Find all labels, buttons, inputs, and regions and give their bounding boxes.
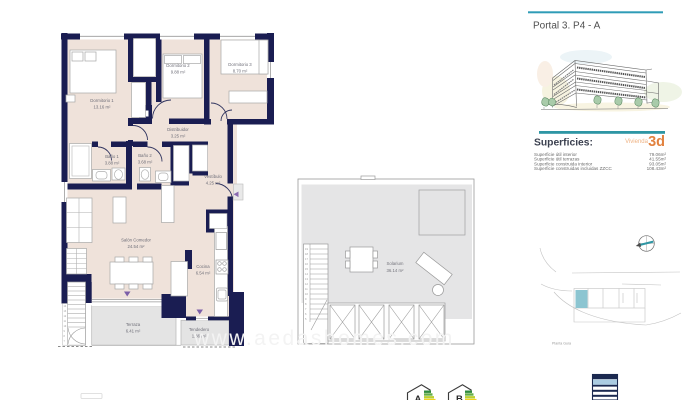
svg-text:24.54 m²: 24.54 m² bbox=[128, 244, 146, 249]
svg-text:Solarium: Solarium bbox=[387, 261, 404, 266]
svg-text:108.43m²: 108.43m² bbox=[647, 166, 667, 171]
svg-text:Vestíbulo: Vestíbulo bbox=[204, 174, 222, 179]
svg-text:6.54 m²: 6.54 m² bbox=[196, 271, 211, 276]
svg-text:9.88 m²: 9.88 m² bbox=[171, 70, 186, 75]
svg-text:Cocina: Cocina bbox=[196, 264, 210, 269]
svg-text:Salón Comedor: Salón Comedor bbox=[121, 238, 151, 243]
svg-text:6.41 m²: 6.41 m² bbox=[126, 329, 141, 334]
svg-text:Portal 3. P4 - A: Portal 3. P4 - A bbox=[533, 21, 601, 32]
svg-text:Superficies:: Superficies: bbox=[534, 138, 593, 149]
svg-text:Terraza: Terraza bbox=[126, 322, 141, 327]
svg-text:3.25 m²: 3.25 m² bbox=[171, 134, 186, 139]
svg-text:13.16 m²: 13.16 m² bbox=[94, 105, 112, 110]
svg-text:Planta Guía: Planta Guía bbox=[552, 342, 571, 346]
svg-text:Vivienda: Vivienda bbox=[625, 139, 649, 145]
svg-text:3.88 m²: 3.88 m² bbox=[105, 161, 120, 166]
svg-text:B: B bbox=[456, 394, 463, 400]
svg-text:36.14 m²: 36.14 m² bbox=[387, 268, 405, 273]
svg-text:A: A bbox=[415, 394, 422, 400]
svg-text:Baño 2: Baño 2 bbox=[138, 153, 152, 158]
svg-text:4.25 m²: 4.25 m² bbox=[206, 181, 221, 186]
svg-text:Superficie construidas incluid: Superficie construidas incluidas ZZCC bbox=[534, 166, 613, 171]
svg-text:Dormitorio 2: Dormitorio 2 bbox=[166, 63, 190, 68]
svg-text:Dormitorio 1: Dormitorio 1 bbox=[90, 98, 114, 103]
svg-text:8.70 m²: 8.70 m² bbox=[233, 69, 248, 74]
svg-text:3d: 3d bbox=[648, 134, 665, 150]
svg-text:Distribuidor: Distribuidor bbox=[167, 127, 189, 132]
svg-text:www.aedashomes.com: www.aedashomes.com bbox=[193, 327, 455, 350]
svg-text:3.68 m²: 3.68 m² bbox=[138, 160, 153, 165]
svg-text:Baño 1: Baño 1 bbox=[105, 154, 119, 159]
svg-text:Dormitorio 3: Dormitorio 3 bbox=[228, 62, 252, 67]
